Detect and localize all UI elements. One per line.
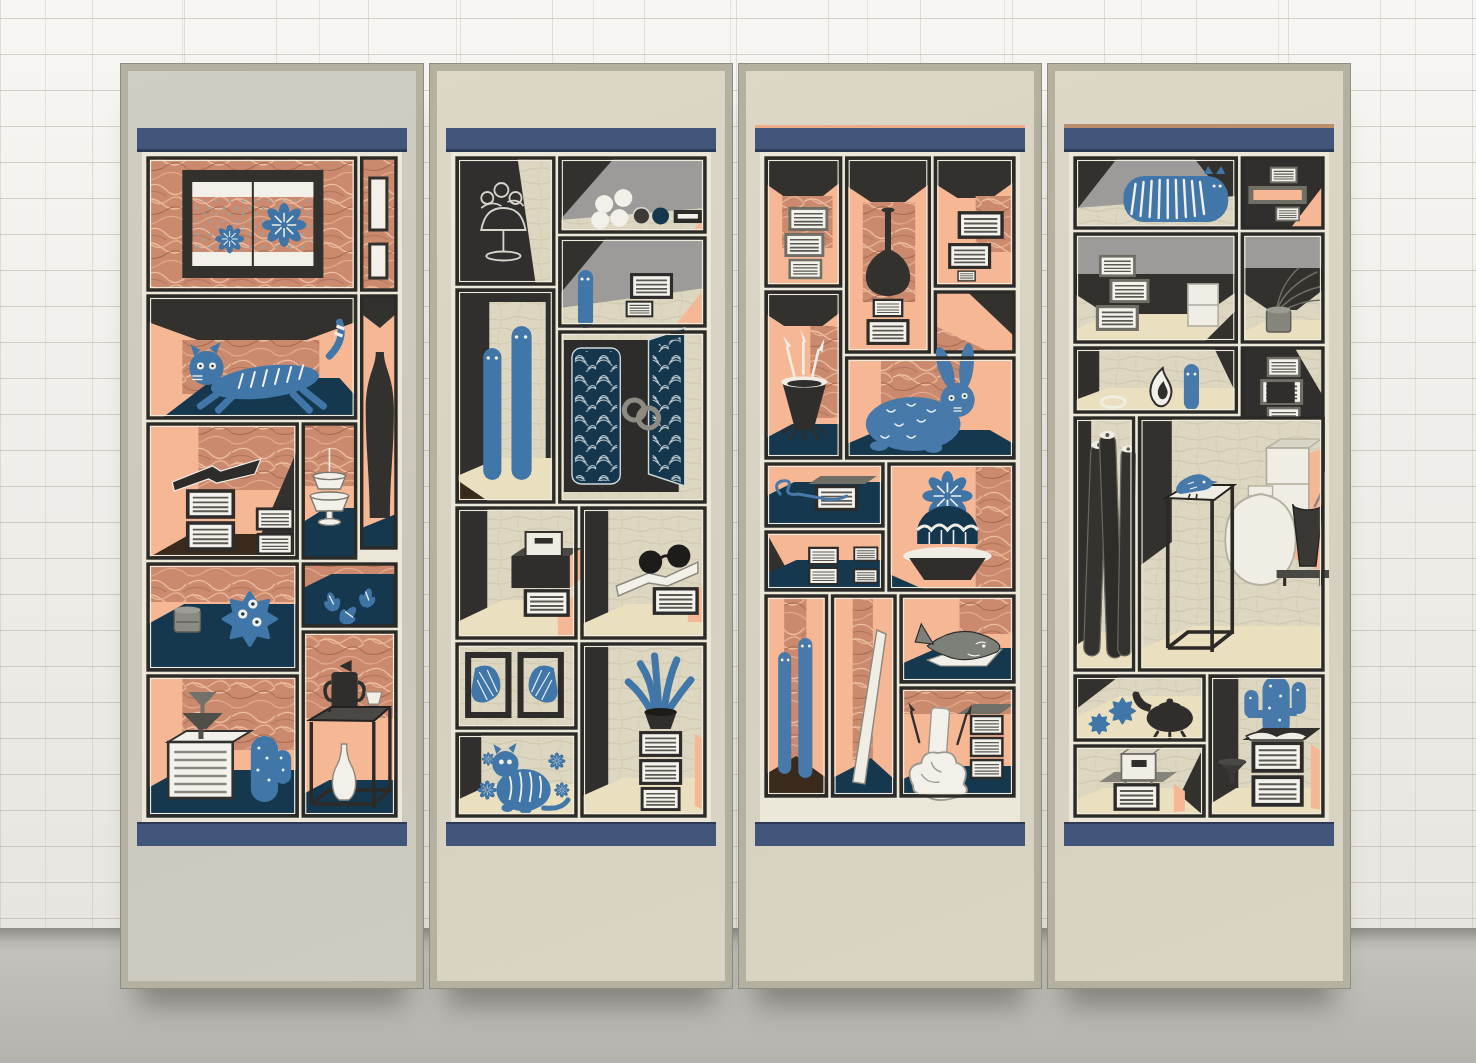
cell-standing-eels (457, 290, 554, 502)
cell-pedestal-cup (303, 424, 355, 558)
cell-standing-eels (766, 596, 826, 796)
cell-book-stack (148, 424, 297, 558)
cell-melting-candle (901, 688, 1014, 800)
cell-stacked-boxes (457, 508, 582, 638)
cell-blue-coral (582, 644, 705, 816)
screen-panel-3 (739, 64, 1041, 988)
folding-screen (121, 64, 1357, 988)
book-stack (653, 587, 699, 615)
cell-scrolls (1075, 418, 1135, 670)
cell-blue-leaves (303, 564, 396, 631)
cell-books-i (766, 532, 883, 590)
cell-sitting-cat (457, 734, 576, 816)
cell-wave-cabinet (560, 328, 705, 502)
cell-cactus-bowl (889, 461, 1014, 590)
book-stack (630, 273, 673, 299)
peeking-eel (578, 270, 593, 328)
cell-eel-books (560, 238, 705, 328)
cell-dark-bottle (362, 296, 396, 548)
grey-jar (174, 607, 200, 632)
screen-panel-2 (430, 64, 732, 988)
rolled-scrolls (1083, 431, 1135, 658)
cell-side-slots (362, 158, 396, 290)
mounting-band-top (137, 128, 407, 152)
cell-books-a (766, 158, 841, 286)
cell-long-neck-vase (847, 158, 930, 352)
cell-display-stand (303, 632, 396, 816)
mounting-band-bottom (1064, 822, 1334, 846)
cell-books-c (935, 158, 1014, 286)
panel-4-artwork (1069, 152, 1329, 822)
cell-brush-pot (766, 292, 841, 458)
cell-books-b (1242, 158, 1323, 228)
book-stack (788, 207, 828, 231)
panel-1-artwork (142, 152, 402, 822)
cell-stand-and-jar (1140, 418, 1329, 670)
cell-stretching-cat (148, 296, 356, 418)
mounting-band-top (1064, 128, 1334, 152)
cell-catfish (901, 596, 1014, 682)
mounting-band-top (755, 128, 1025, 152)
mounting-band-bottom (755, 822, 1025, 846)
spiky-urchin (223, 593, 276, 646)
cell-glasses-book (582, 508, 705, 638)
mounting-band-bottom (137, 822, 407, 846)
cell-funnels-cactus (148, 676, 297, 816)
screen-panel-4 (1048, 64, 1350, 988)
screen-panel-1 (121, 64, 423, 988)
cell-grass-pot (1242, 234, 1323, 342)
cell-flame (1075, 348, 1236, 412)
book-stack (1099, 255, 1136, 277)
cell-urchins-kettle (1075, 676, 1204, 740)
cell-saguaro (1210, 676, 1323, 816)
cell-leaning-board (833, 596, 895, 796)
cell-outline-goblet (457, 158, 554, 284)
screen-mockup-scene (0, 0, 1476, 1063)
panel-3-artwork (760, 152, 1020, 822)
mounting-band-bottom (446, 822, 716, 846)
cell-framed-shells (457, 644, 576, 728)
blue-pillar-figure (1184, 364, 1199, 410)
cell-flower-window (148, 158, 356, 290)
mounting-band-top (446, 128, 716, 152)
cell-hedgehog (1075, 158, 1236, 228)
panel-2-artwork (451, 152, 711, 822)
white-box (1188, 284, 1218, 326)
cell-egg-shelf (560, 158, 705, 232)
cell-urchin (148, 564, 297, 670)
wave-door-left (572, 348, 620, 484)
cell-thread-book (766, 464, 883, 526)
cell-blue-rabbit (847, 342, 1014, 458)
cell-books-wall (1075, 234, 1236, 342)
cell-empty-nook (935, 292, 1014, 352)
cell-chest (1075, 746, 1204, 816)
